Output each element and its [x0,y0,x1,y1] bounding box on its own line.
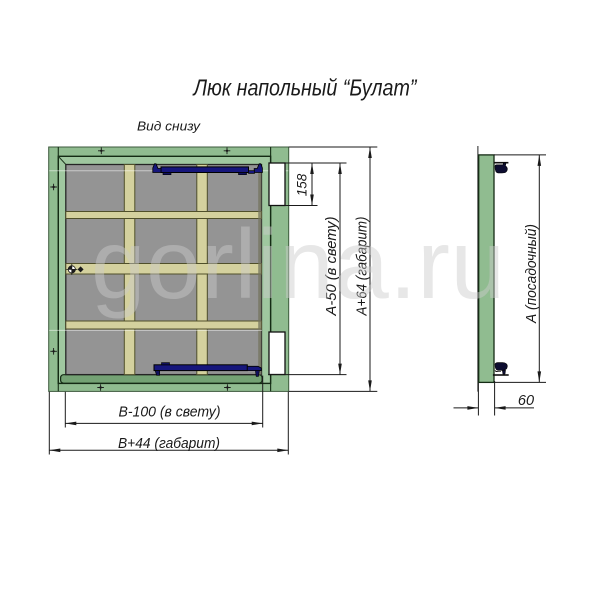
svg-text:gorlina.ru: gorlina.ru [91,209,506,319]
svg-text:158: 158 [295,173,310,196]
svg-text:Вид снизу: Вид снизу [137,119,202,134]
svg-text:Люк напольный “Булат”: Люк напольный “Булат” [192,75,418,101]
svg-text:А (посадочный): А (посадочный) [523,224,540,324]
svg-text:60: 60 [518,393,534,409]
svg-text:В-100 (в свету): В-100 (в свету) [119,404,221,421]
svg-text:В+44 (габарит): В+44 (габарит) [118,435,220,452]
